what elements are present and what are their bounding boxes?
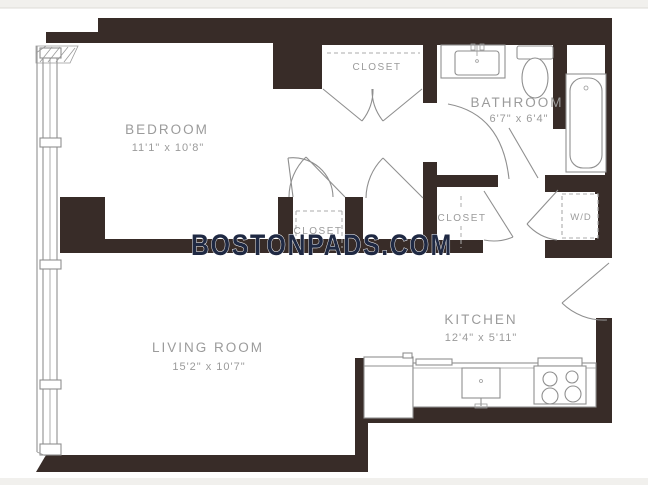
wall-segment — [322, 18, 612, 45]
wall-segment — [46, 32, 98, 43]
wall-segment — [423, 44, 437, 103]
watermark-text: BOSTONPADS.COM — [191, 229, 453, 262]
living-room-name: LIVING ROOM — [152, 340, 264, 355]
stove — [534, 358, 586, 404]
wall-segment — [423, 175, 498, 187]
wall-segment — [553, 43, 567, 129]
window-mullion — [40, 444, 61, 455]
bathtub — [566, 74, 606, 172]
closet-hall-label: CLOSET — [437, 213, 486, 224]
kitchen-name: KITCHEN — [444, 312, 517, 327]
window-mullion — [40, 380, 61, 389]
closet-top-label: CLOSET — [352, 62, 401, 73]
floor-plan-page: BEDROOM 11'1" x 10'8" BATHROOM 6'7" x 6'… — [0, 0, 648, 485]
floor-plan-svg: BEDROOM 11'1" x 10'8" BATHROOM 6'7" x 6'… — [0, 0, 648, 485]
refrigerator — [364, 353, 413, 418]
wall-segment — [545, 175, 612, 192]
kitchen-dims: 12'4" x 5'11" — [445, 332, 518, 344]
wall-segment — [273, 43, 322, 89]
bathroom-vanity — [441, 44, 505, 78]
wall-segment — [60, 197, 105, 245]
washer-dryer-label: W/D — [570, 212, 591, 223]
bathroom-name: BATHROOM — [471, 95, 564, 110]
window-mullion — [40, 260, 61, 269]
window-mullion — [40, 138, 61, 147]
bathroom-dims: 6'7" x 6'4" — [489, 113, 548, 125]
living-room-dims: 15'2" x 10'7" — [172, 361, 245, 373]
wall-segment — [355, 423, 368, 455]
wall-segment — [98, 18, 322, 43]
wall-segment — [36, 455, 368, 472]
wall-segment — [545, 240, 612, 258]
bedroom-name: BEDROOM — [125, 122, 209, 137]
bedroom-dims: 11'1" x 10'8" — [132, 142, 205, 154]
